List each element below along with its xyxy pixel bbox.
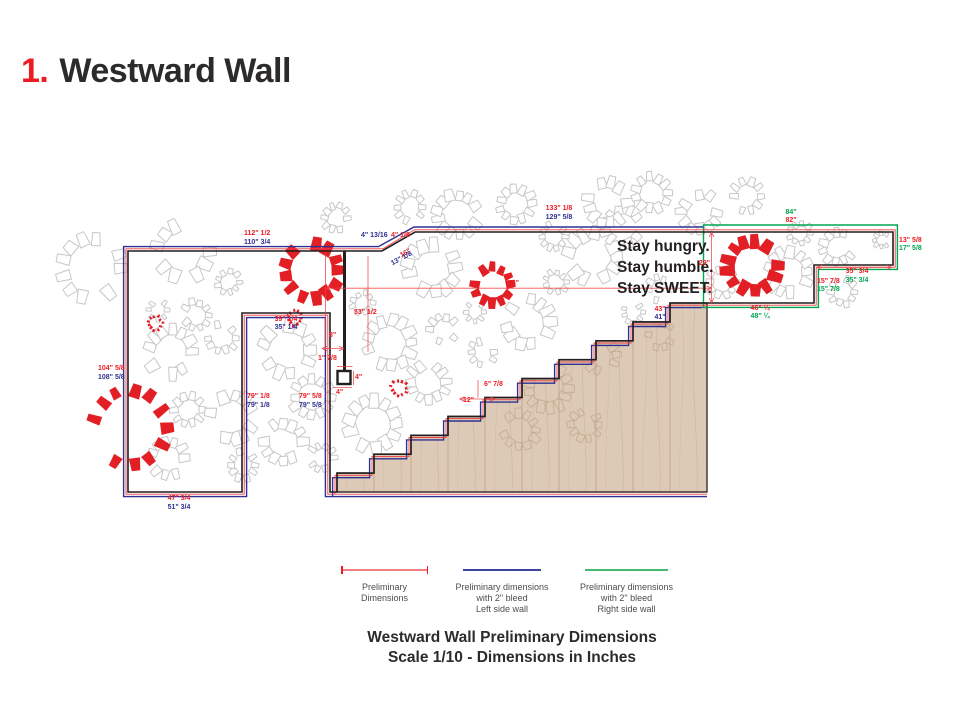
dimension-label: 41" — [654, 314, 665, 321]
dimension-label: 51" 3/4 — [168, 504, 191, 511]
dimension-label: 48" ¼ — [751, 313, 770, 320]
dimension-label: 84" — [785, 209, 796, 216]
dimension-label: 82" — [785, 217, 796, 224]
dimension-label: 53" 1/2 — [354, 309, 377, 316]
dimension-label: 133" 1/8 — [546, 205, 573, 212]
legend-label: Preliminary dimensionswith 2" bleedRight… — [557, 582, 697, 615]
dimension-label: 110" 3/4 — [244, 239, 270, 246]
dimension-label: 17" 5/8 — [899, 245, 922, 252]
dimension-label: 79" 5/8 — [299, 393, 322, 400]
legend-label-line: with 2" bleed — [432, 593, 572, 604]
legend-line-sample — [463, 569, 541, 571]
legend-line-sample — [341, 569, 428, 571]
quote-line: Stay hungry. — [617, 236, 713, 257]
dimension-label: 39" 1/4 — [275, 316, 298, 323]
dimension-label: 4" — [355, 374, 362, 381]
dimension-label: 46" ¼ — [751, 305, 770, 312]
dimension-label: 66" — [508, 280, 519, 287]
dimension-label: 108" 5/8 — [98, 374, 125, 381]
dimension-label: 35" 3/4 — [846, 268, 869, 275]
title-text: Westward Wall — [59, 52, 291, 90]
caption: Westward Wall Preliminary Dimensions Sca… — [64, 628, 960, 668]
dimension-label: 104" 5/8 — [98, 365, 125, 372]
dimension-label: 29" — [699, 260, 710, 267]
dimension-label: 35" 3/4 — [846, 277, 869, 284]
dimension-label: 4" 1/8 — [391, 232, 410, 239]
legend-line-sample — [585, 569, 668, 571]
dimension-label: 12" — [463, 397, 474, 404]
dimension-label: 79" 1/8 — [247, 402, 270, 409]
legend-label-line: Right side wall — [557, 604, 697, 615]
legend-line-tick — [341, 566, 343, 574]
dimension-label: 8" — [329, 332, 336, 339]
dimension-label: 13" 5/8 — [899, 237, 922, 244]
dimension-label: 35" 1/4 — [275, 324, 298, 331]
caption-line-1: Westward Wall Preliminary Dimensions — [64, 628, 960, 648]
legend-line-tick — [427, 566, 429, 574]
legend-label-line: Left side wall — [432, 604, 572, 615]
dimension-label: 79" 1/8 — [247, 393, 270, 400]
quote-line: Stay SWEET. — [617, 278, 713, 299]
dimension-label: 6" 7/8 — [484, 381, 503, 388]
legend-label: Preliminary dimensionswith 2" bleedLeft … — [432, 582, 572, 615]
dimension-label: 129" 5/8 — [546, 214, 573, 221]
page-title: 1.Westward Wall — [21, 52, 291, 91]
title-number: 1. — [21, 52, 48, 90]
dimension-label: 15" 7/8 — [817, 278, 840, 285]
dimension-label: 15" 7/8 — [817, 286, 840, 293]
caption-line-2: Scale 1/10 - Dimensions in Inches — [64, 648, 960, 668]
dimension-label: 112" 1/2 — [244, 230, 270, 237]
quote-block: Stay hungry. Stay humble. Stay SWEET. — [617, 236, 713, 299]
legend-label-line: with 2" bleed — [557, 593, 697, 604]
slide: 1.Westward Wall Stay hungry. Stay humble… — [0, 0, 960, 720]
legend-label-line: Preliminary dimensions — [557, 582, 697, 593]
dimension-label: 43" — [654, 306, 665, 313]
dimension-label: 47" 3/4 — [168, 495, 191, 502]
dimension-label: 79" 5/8 — [299, 402, 322, 409]
legend-label-line: Preliminary dimensions — [432, 582, 572, 593]
dimension-label: 1" 7/8 — [318, 355, 337, 362]
dimension-label: 4" — [336, 389, 343, 396]
dimension-label: 4" 13/16 — [361, 232, 388, 239]
